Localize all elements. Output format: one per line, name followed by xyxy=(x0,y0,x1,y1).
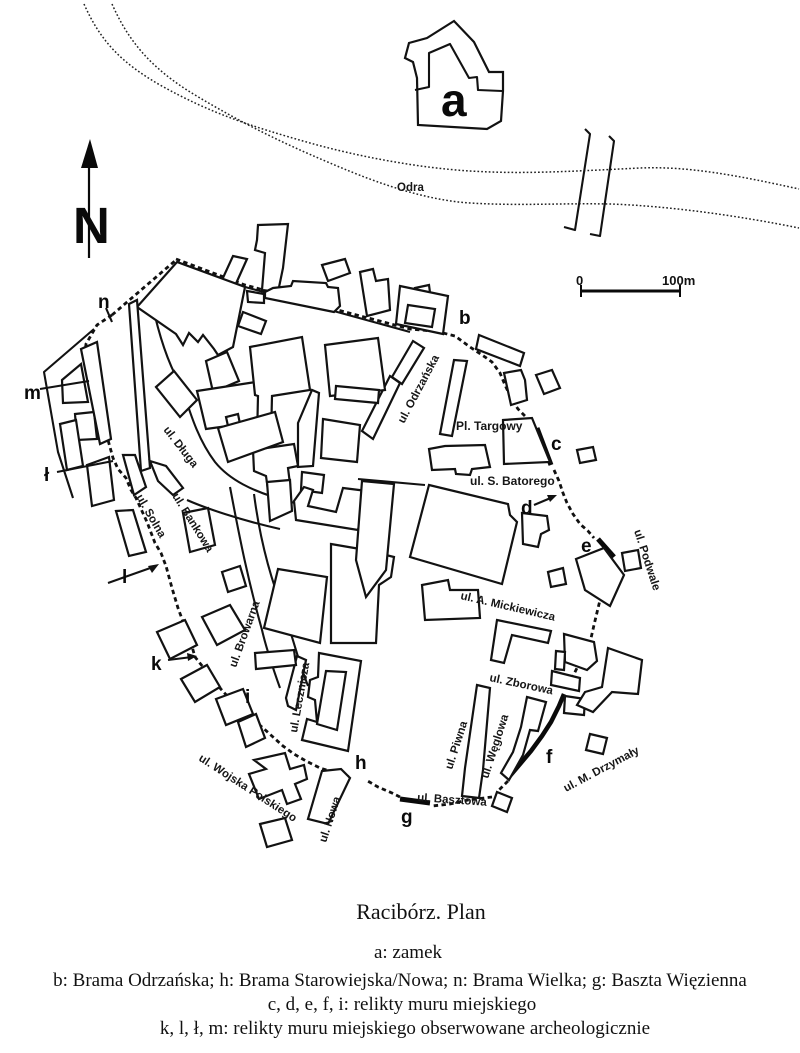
svg-text:k: k xyxy=(151,654,162,675)
svg-text:Odra: Odra xyxy=(397,182,424,194)
svg-text:100m: 100m xyxy=(662,273,695,288)
svg-text:0: 0 xyxy=(576,273,583,288)
svg-text:i: i xyxy=(245,687,250,708)
svg-text:b: Brama Odrzańska; h: Brama S: b: Brama Odrzańska; h: Brama Starowiejsk… xyxy=(53,970,747,991)
svg-text:ul. S. Batorego: ul. S. Batorego xyxy=(470,474,555,488)
svg-text:b: b xyxy=(459,308,471,329)
svg-text:a: a xyxy=(441,74,467,126)
svg-text:Racibórz. Plan: Racibórz. Plan xyxy=(356,899,486,924)
svg-text:l: l xyxy=(122,567,127,588)
svg-text:h: h xyxy=(355,753,367,774)
svg-text:ł: ł xyxy=(44,465,50,486)
svg-text:N: N xyxy=(73,197,110,254)
svg-text:g: g xyxy=(401,807,413,828)
svg-text:c, d, e, f, i: relikty muru mi: c, d, e, f, i: relikty muru miejskiego xyxy=(268,994,537,1015)
svg-text:f: f xyxy=(546,747,553,768)
svg-text:k, l, ł, m: relikty muru miejs: k, l, ł, m: relikty muru miejskiego obse… xyxy=(160,1018,650,1039)
svg-text:a: zamek: a: zamek xyxy=(374,942,443,963)
svg-text:Pl. Targowy: Pl. Targowy xyxy=(456,419,523,433)
svg-text:c: c xyxy=(551,434,562,455)
svg-text:d: d xyxy=(521,498,533,519)
svg-text:n: n xyxy=(98,292,110,313)
svg-text:e: e xyxy=(581,536,592,557)
svg-text:m: m xyxy=(24,383,41,404)
